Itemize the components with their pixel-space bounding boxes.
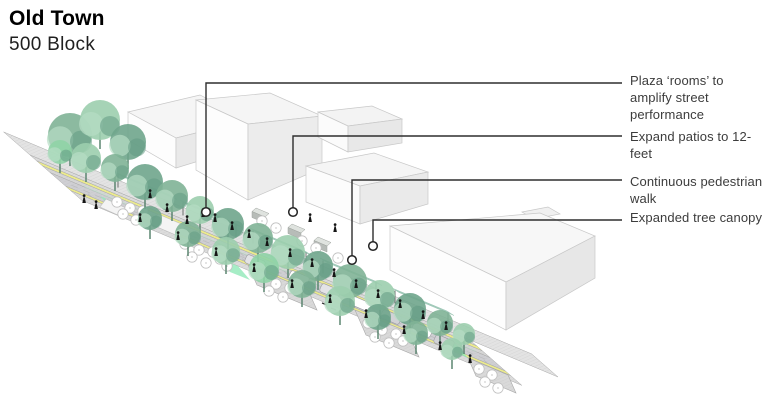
annotation-expand-patios: Expand patios to 12- feet <box>630 128 768 162</box>
slide: Old Town 500 Block Plaza ‘rooms’ to ampl… <box>0 0 770 401</box>
leader-target-3 <box>369 242 378 251</box>
building-center <box>196 93 322 200</box>
leader-target-2 <box>348 256 357 265</box>
building-mid-east <box>306 153 428 224</box>
annotation-plaza-rooms: Plaza ‘rooms’ to amplify street performa… <box>630 72 768 123</box>
annotation-pedestrian-walk: Continuous pedestrian walk <box>630 173 768 207</box>
leader-target-0 <box>202 208 211 217</box>
leader-target-1 <box>289 208 298 217</box>
annotation-tree-canopy: Expanded tree canopy <box>630 209 768 226</box>
building-center-annex <box>318 106 402 152</box>
